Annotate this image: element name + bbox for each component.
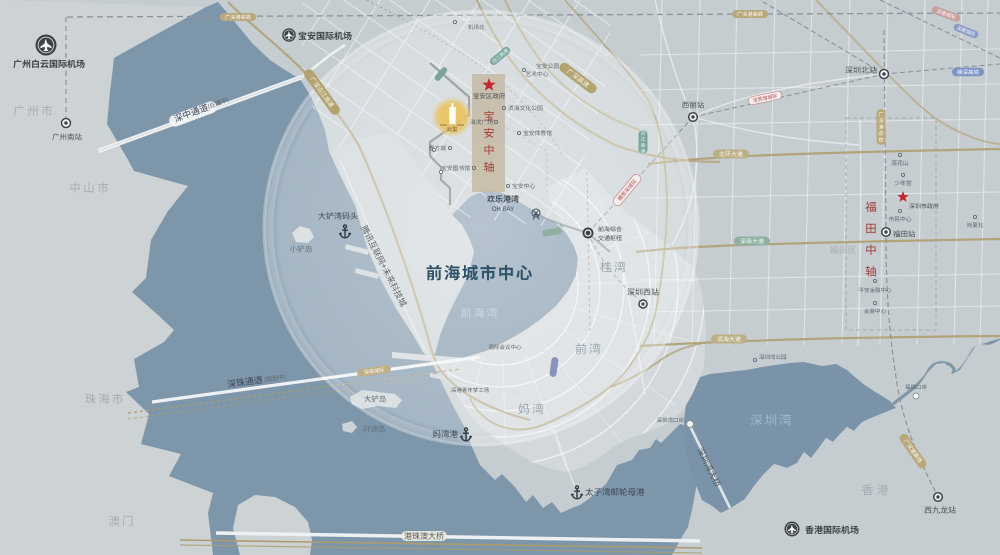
svg-text:OH BAY: OH BAY (492, 207, 514, 213)
